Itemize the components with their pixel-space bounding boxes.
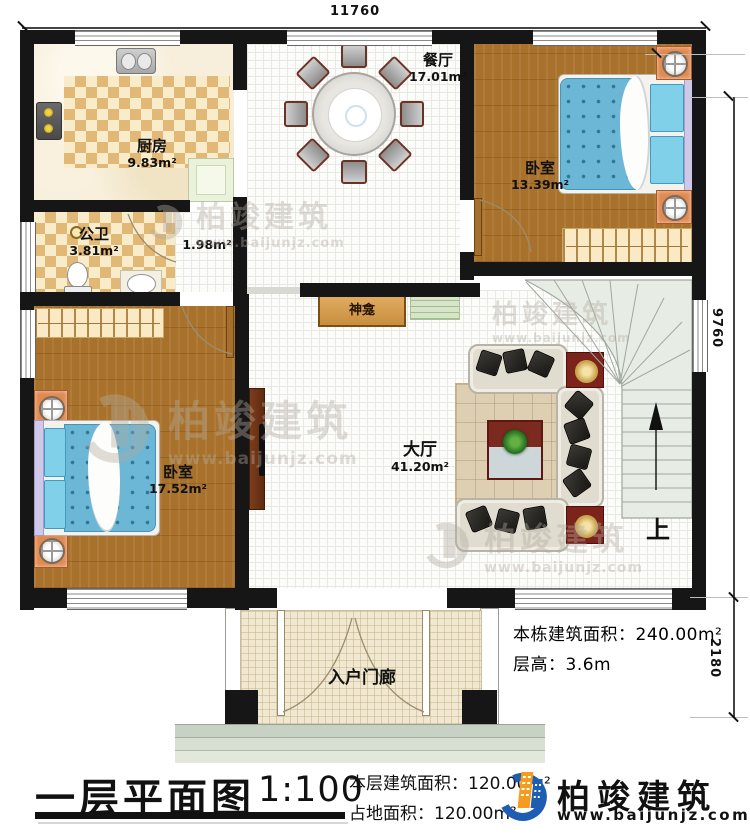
window bbox=[20, 310, 36, 378]
staircase bbox=[478, 278, 694, 522]
wall bbox=[657, 30, 706, 44]
dimension-line-right bbox=[733, 97, 735, 718]
porch-column-right bbox=[462, 690, 497, 724]
kitchen-label: 厨房9.83m² bbox=[127, 138, 176, 170]
window bbox=[515, 588, 672, 610]
dining-chair bbox=[400, 101, 424, 127]
extension-line bbox=[690, 717, 748, 718]
bed1-pillow bbox=[650, 84, 684, 132]
note-building-area: 本栋建筑面积：240.00m² bbox=[513, 620, 722, 645]
corridor-label: 1.98m² bbox=[182, 238, 231, 253]
kitchen-stove bbox=[36, 102, 62, 140]
dining-table bbox=[312, 72, 396, 156]
wall bbox=[233, 44, 247, 90]
bed2-pillow bbox=[44, 428, 66, 477]
window bbox=[533, 30, 657, 46]
dining-chair bbox=[284, 101, 308, 127]
wall bbox=[432, 30, 533, 44]
wall bbox=[20, 378, 34, 610]
extension-line bbox=[690, 597, 748, 598]
porch-step-2 bbox=[175, 737, 545, 751]
shrine: 神龛 bbox=[318, 295, 406, 327]
company-logo-url: www.baijunjz.com bbox=[557, 806, 750, 824]
wall bbox=[692, 372, 706, 610]
nightstand bbox=[656, 190, 692, 224]
dining-chair bbox=[341, 160, 367, 184]
window bbox=[287, 30, 432, 46]
wall bbox=[460, 262, 692, 276]
stairs-up-label: 上 bbox=[646, 510, 670, 545]
nightstand bbox=[34, 532, 68, 568]
wall bbox=[20, 292, 180, 306]
wall bbox=[672, 588, 706, 610]
wall bbox=[20, 588, 67, 608]
title-underline-shadow bbox=[38, 822, 348, 824]
window bbox=[692, 300, 708, 372]
bedroom1-door-leaf bbox=[474, 198, 482, 256]
note-floor-height: 层高：3.6m bbox=[513, 650, 611, 675]
porch-door-leaf-right bbox=[422, 610, 430, 716]
extension-line bbox=[690, 97, 748, 98]
opening-threshold bbox=[247, 287, 300, 294]
porch-column-left bbox=[225, 690, 258, 724]
bed1-pillow bbox=[650, 136, 684, 184]
kitchen-sink bbox=[116, 48, 156, 74]
bed2-pillow bbox=[44, 480, 66, 529]
wardrobe bbox=[34, 308, 164, 338]
tv bbox=[259, 424, 265, 476]
bathroom-label: 公卫3.81m² bbox=[69, 226, 118, 258]
wall bbox=[235, 292, 249, 610]
bed2-headboard bbox=[34, 420, 44, 536]
bedroom2-door-leaf bbox=[226, 306, 234, 358]
wall bbox=[692, 44, 706, 300]
dining-chair bbox=[341, 44, 367, 68]
toilet bbox=[64, 262, 90, 296]
bedroom2-label: 卧室17.52m² bbox=[149, 464, 207, 496]
company-logo-icon bbox=[496, 766, 550, 826]
wall bbox=[447, 588, 515, 608]
window bbox=[20, 222, 36, 292]
wall bbox=[233, 197, 247, 306]
wall bbox=[20, 30, 34, 222]
titleblock-land-area: 占地面积：120.00m² bbox=[349, 799, 517, 824]
dimension-line-top bbox=[22, 27, 706, 29]
floor-plan: 神龛 bbox=[0, 0, 750, 840]
wall bbox=[187, 588, 277, 608]
plan-scale: 1:100 bbox=[258, 770, 364, 810]
porch-step-3 bbox=[175, 750, 545, 763]
dining-label: 餐厅17.01m² bbox=[409, 52, 467, 84]
porch-step-1 bbox=[175, 724, 545, 738]
kitchen-cabinet bbox=[188, 158, 234, 202]
dimension-top: 11760 bbox=[330, 4, 380, 19]
hall-label: 大厅41.20m² bbox=[391, 440, 449, 475]
title-underline bbox=[35, 812, 345, 819]
dimension-right-upper: 9760 bbox=[709, 308, 724, 348]
nightstand bbox=[656, 46, 692, 80]
wall bbox=[180, 30, 287, 44]
window bbox=[67, 588, 187, 610]
porch-door-leaf-left bbox=[277, 610, 285, 716]
wall bbox=[300, 283, 480, 297]
bedroom1-label: 卧室13.39m² bbox=[511, 160, 569, 192]
wall bbox=[20, 200, 190, 212]
wardrobe bbox=[562, 228, 692, 264]
porch-label: 入户门廊 bbox=[328, 668, 396, 688]
shrine-label: 神龛 bbox=[349, 303, 375, 318]
window bbox=[75, 30, 180, 46]
